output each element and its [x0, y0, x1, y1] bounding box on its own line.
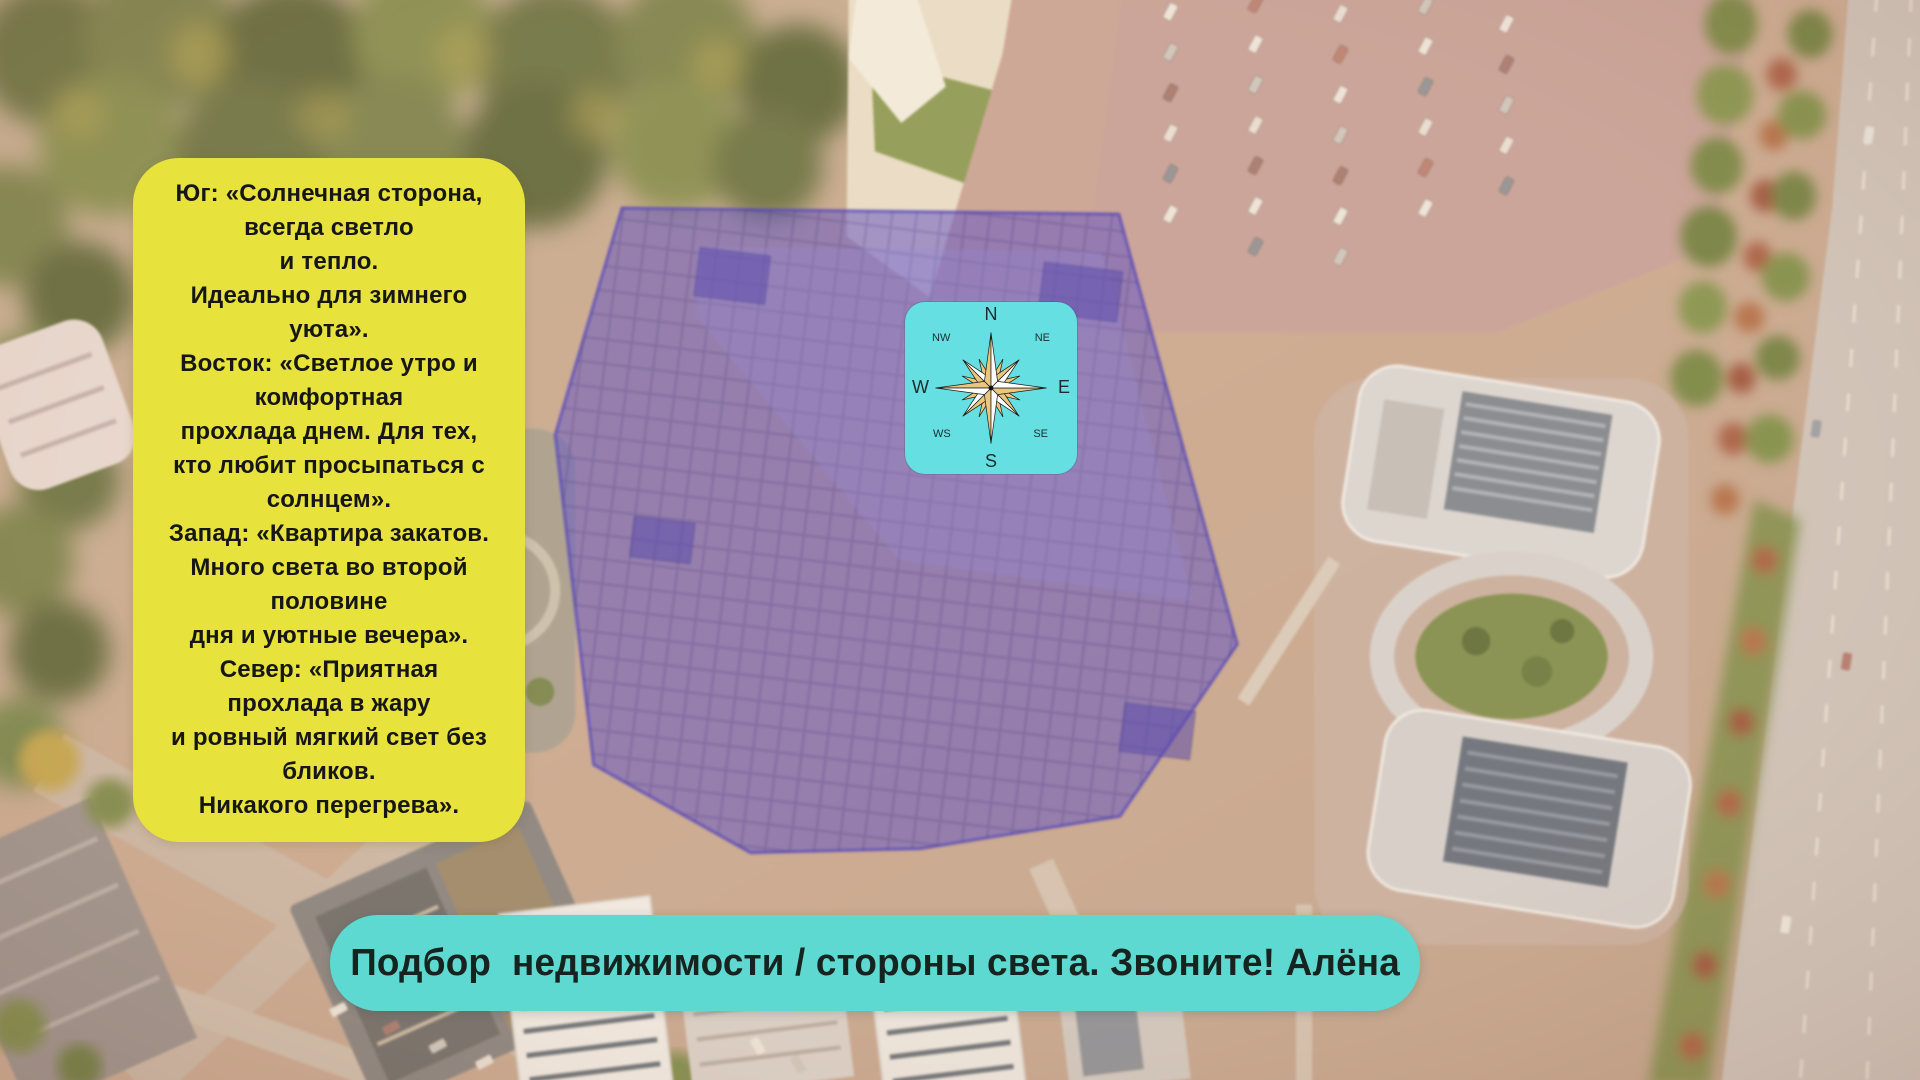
orientation-info-text: Юг: «Солнечная сторона, всегда светло и … — [151, 177, 507, 823]
compass-label-west: W — [912, 377, 929, 398]
ad-creative: Юг: «Солнечная сторона, всегда светло и … — [0, 0, 1920, 1080]
compass-label-southeast: SE — [1033, 428, 1048, 440]
compass-panel: N S W E NW NE WS SE — [905, 302, 1077, 474]
contact-banner-text: Подбор недвижимости / стороны света. Зво… — [350, 942, 1400, 985]
compass-label-northeast: NE — [1035, 332, 1050, 344]
compass-label-south: S — [905, 451, 1077, 472]
contact-banner: Подбор недвижимости / стороны света. Зво… — [330, 915, 1420, 1011]
orientation-info-card: Юг: «Солнечная сторона, всегда светло и … — [133, 158, 525, 842]
compass-label-northwest: NW — [932, 332, 950, 344]
compass-label-southwest: WS — [933, 428, 951, 440]
compass-label-north: N — [905, 304, 1077, 325]
compass-label-east: E — [1058, 377, 1070, 398]
